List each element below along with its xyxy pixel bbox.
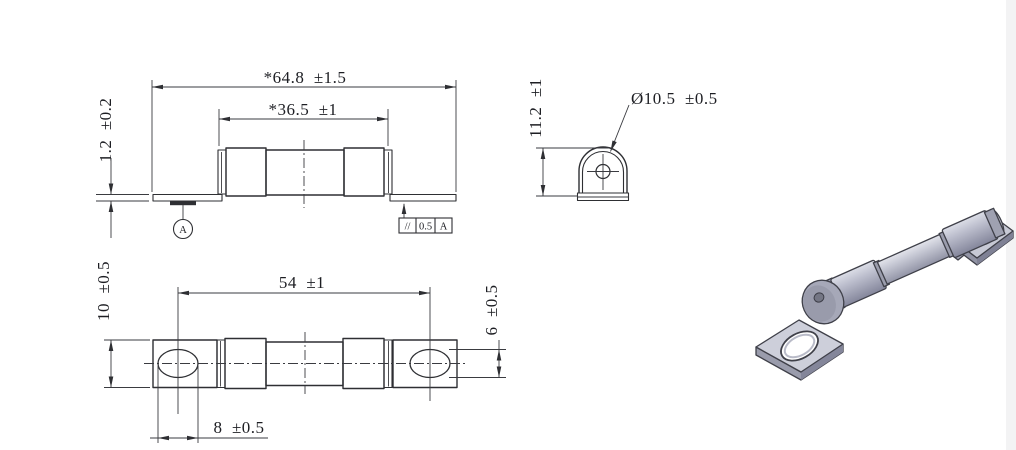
technical-drawing-canvas: *64.8 ±1.5 *36.5 ±1 1.2 ±0.2 A // 0.5 (0, 0, 1016, 450)
front-right-terminal (390, 195, 456, 202)
datum-target-bar (170, 201, 196, 205)
parallelism-tolerance-frame: // 0.5 A (399, 203, 452, 233)
parallelism-tolerance-value: 0.5 (419, 222, 432, 233)
front-right-cap (344, 148, 384, 196)
dim-overall-length-label: *64.8 ±1.5 (264, 68, 347, 87)
dim-terminal-width-label: 10 ±0.5 (94, 261, 113, 321)
front-left-cap (226, 148, 266, 196)
dim-hole-major-label: 8 ±0.5 (213, 418, 264, 437)
front-left-terminal (153, 195, 222, 202)
dim-hole-minor-label: 6 ±0.5 (482, 284, 501, 335)
photo-edge-band (1006, 0, 1016, 450)
parallelism-datum-ref: A (440, 222, 448, 233)
datum-label: A (179, 225, 187, 236)
dim-cap-diameter-label: Ø10.5 ±0.5 (631, 89, 718, 108)
dim-height-label: 11.2 ±1 (526, 78, 545, 137)
drawing-page: *64.8 ±1.5 *36.5 ±1 1.2 ±0.2 A // 0.5 (0, 0, 1016, 450)
front-right-collar (384, 150, 392, 194)
side-view: 11.2 ±1 Ø10.5 ±0.5 (526, 78, 718, 200)
front-view: *64.8 ±1.5 *36.5 ±1 1.2 ±0.2 A // 0.5 (96, 68, 456, 239)
ceramic-body (877, 234, 951, 284)
render-3d (756, 206, 1013, 380)
top-view: 54 ±1 10 ±0.5 6 ±0.5 8 ±0.5 (94, 261, 506, 443)
parallelism-symbol: // (405, 222, 411, 233)
dim-hole-spacing-label: 54 ±1 (279, 273, 325, 292)
dim-ceramic-body-label: *36.5 ±1 (268, 100, 337, 119)
render-lower-tab (756, 320, 843, 380)
front-body (266, 150, 344, 195)
dim-terminal-thickness-label: 1.2 ±0.2 (96, 98, 115, 163)
front-left-collar (218, 150, 226, 194)
